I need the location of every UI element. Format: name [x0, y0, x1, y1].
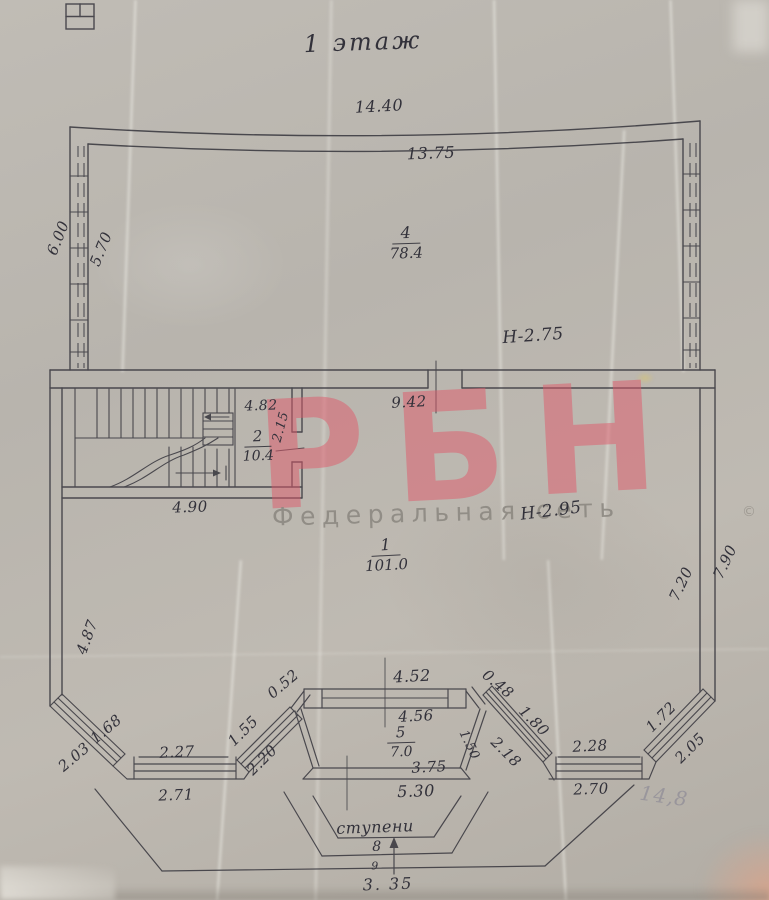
room5-area: 7.0 — [390, 742, 413, 760]
dim-entry-opening: 9.42 — [391, 392, 427, 412]
dim-stair-bottom: 4.90 — [172, 497, 208, 516]
dim-porch-back-inner: 3.75 — [411, 757, 447, 777]
dimension-ticks — [347, 658, 385, 810]
watermark-copyright: © — [742, 504, 756, 520]
steps-label: ступени — [336, 816, 414, 838]
room4-number: 4 — [391, 224, 420, 245]
room5-number: 5 — [387, 724, 415, 743]
room2-area: 10.4 — [242, 446, 274, 464]
steps-mark: 9 — [371, 860, 379, 873]
dim-bay-right-front-outer: 2.70 — [573, 779, 609, 798]
steps-count: 8 — [372, 839, 381, 855]
floorplan-photo: РБН Федеральная сеть © 1 этаж 14.40 13.7… — [0, 0, 769, 900]
page-title: 1 этаж — [303, 26, 423, 58]
chimney-box — [66, 4, 94, 29]
room1-number: 1 — [371, 535, 400, 556]
room4-label: 4 78.4 — [389, 224, 424, 263]
photo-bottom-edge — [0, 886, 769, 900]
room2-number: 2 — [244, 428, 272, 447]
room1-area: 101.0 — [365, 555, 409, 575]
staircase — [75, 388, 235, 487]
dim-top-outer: 14.40 — [354, 95, 403, 117]
upper-hall-outline — [66, 4, 700, 370]
bay-windows-right — [483, 686, 715, 780]
height-note-upper: H-2.75 — [502, 324, 565, 348]
dim-bay-left-front-inner: 2.27 — [159, 742, 195, 762]
dim-porch-back-outer: 5.30 — [397, 781, 435, 801]
photo-corner-light-tr — [733, 0, 769, 52]
dim-porch-front-outer: 4.52 — [393, 666, 432, 687]
photo-corner-light-bl — [0, 866, 115, 900]
dim-bay-left-front-outer: 2.71 — [158, 785, 194, 804]
dim-stair-top: 4.82 — [244, 397, 278, 414]
dim-top-inner: 13.75 — [407, 143, 456, 164]
room2-label: 2 10.4 — [242, 428, 274, 465]
room5-label: 5 7.0 — [387, 724, 416, 761]
room1-label: 1 101.0 — [364, 535, 409, 575]
dim-bay-right-front-inner: 2.28 — [572, 736, 608, 756]
room4-area: 78.4 — [389, 243, 423, 262]
